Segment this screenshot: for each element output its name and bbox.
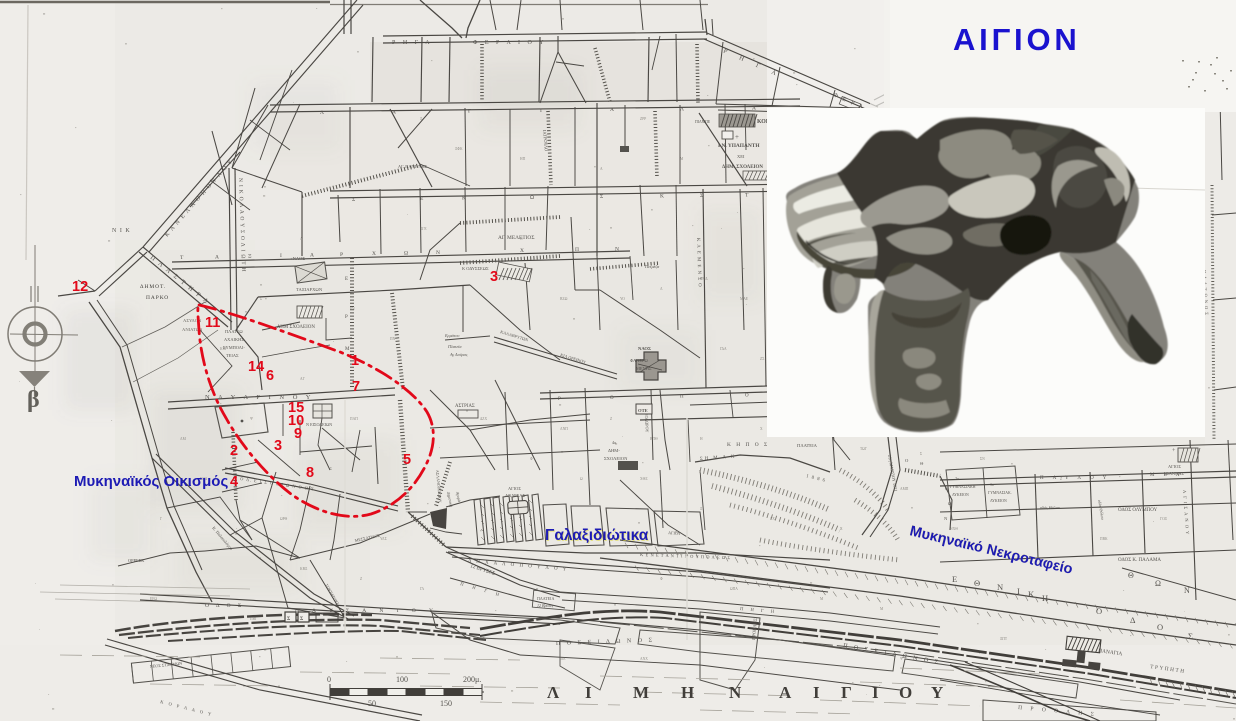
svg-text:Γαλαξιδιώτικα: Γαλαξιδιώτικα xyxy=(545,527,649,544)
svg-text:3: 3 xyxy=(274,438,282,454)
svg-text:6: 6 xyxy=(266,368,274,384)
svg-text:12: 12 xyxy=(72,279,88,295)
svg-text:Μυκηναϊκός Οικισμός: Μυκηναϊκός Οικισμός xyxy=(74,473,228,490)
svg-text:4: 4 xyxy=(230,474,238,490)
svg-text:ΔΗΜΟΤ.: ΔΗΜΟΤ. xyxy=(140,284,166,290)
svg-text:1: 1 xyxy=(351,353,359,369)
svg-text:5: 5 xyxy=(403,452,411,468)
svg-text:ΑΙΓΙΟΝ: ΑΙΓΙΟΝ xyxy=(953,22,1081,57)
svg-text:11: 11 xyxy=(205,315,220,331)
svg-text:3: 3 xyxy=(490,269,498,285)
svg-text:7: 7 xyxy=(352,379,360,395)
svg-text:14: 14 xyxy=(248,359,264,375)
svg-text:2: 2 xyxy=(230,443,238,459)
svg-text:8: 8 xyxy=(306,465,314,481)
svg-text:ΠΑΡΚΟ: ΠΑΡΚΟ xyxy=(146,295,169,301)
svg-text:9: 9 xyxy=(294,426,302,442)
